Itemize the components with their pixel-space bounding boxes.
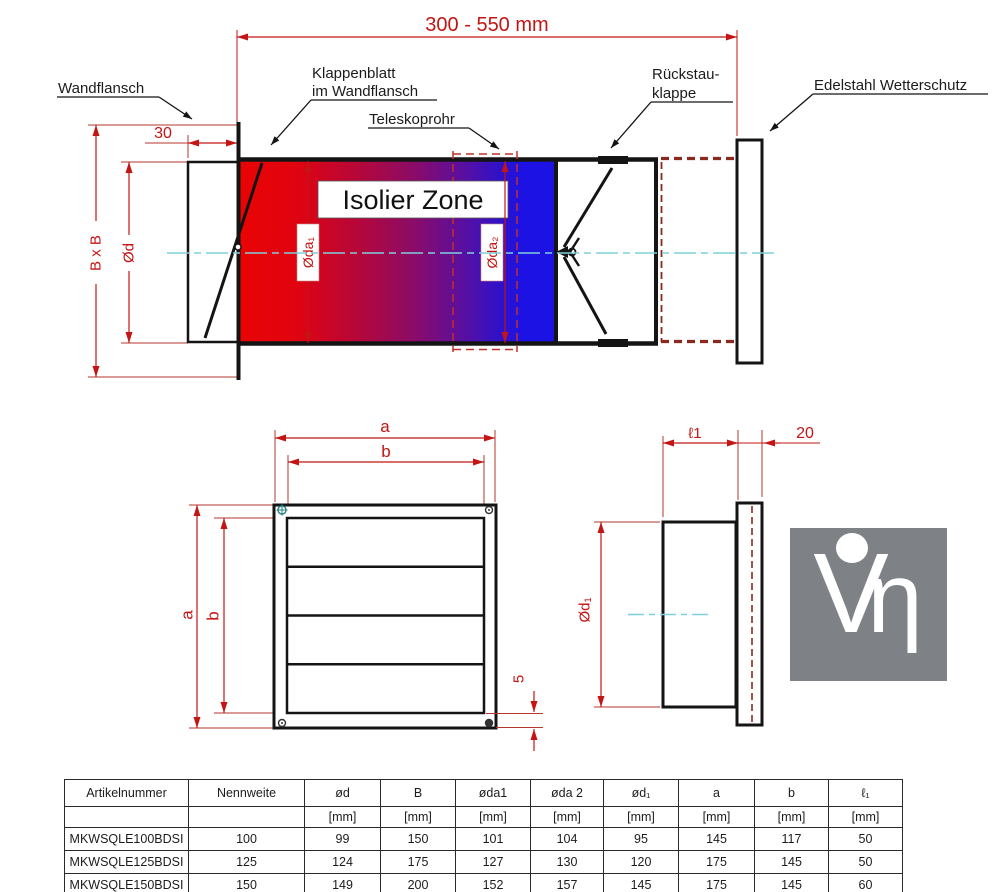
technical-drawing: 300 - 550 mm 30 B x B Ød [0, 0, 1000, 775]
table-header-cell: øda 2 [531, 780, 604, 807]
table-data-cell: 150 [189, 874, 305, 892]
table-data-cell: 149 [305, 874, 381, 892]
table-data-cell: 99 [305, 828, 381, 851]
spec-table: ArtikelnummerNennweiteødBøda1øda 2ød₁abℓ… [64, 779, 903, 892]
dim-label-5: 5 [511, 675, 528, 683]
dim-label-20: 20 [796, 425, 814, 442]
table-units-cell: [mm] [755, 807, 829, 828]
table-units-cell: [mm] [531, 807, 604, 828]
table-data-cell: 101 [456, 828, 531, 851]
table-data-cell: 120 [604, 851, 679, 874]
table-data-cell: 145 [679, 828, 755, 851]
table-units-cell: [mm] [456, 807, 531, 828]
table-data-cell: MKWSQLE125BDSI [65, 851, 189, 874]
table-data-cell: 127 [456, 851, 531, 874]
table-data-cell: 50 [829, 828, 903, 851]
dim-label-bxb: B x B [88, 235, 105, 271]
table-header-cell: a [679, 780, 755, 807]
dim-label-30: 30 [154, 125, 172, 142]
dim-label-l1: ℓ1 [688, 425, 701, 442]
duct-plate [737, 503, 762, 725]
isolier-zone-label: Isolier Zone [342, 185, 483, 215]
label-wandflansch: Wandflansch [58, 80, 144, 97]
table-header-cell: øda1 [456, 780, 531, 807]
dim-label-overall: 300 - 550 mm [425, 14, 548, 36]
table-data-cell: 175 [679, 851, 755, 874]
weather-plate [737, 140, 762, 363]
table-units-cell: [mm] [381, 807, 456, 828]
housing-tab-bottom [598, 339, 628, 347]
table-data-cell: 145 [604, 874, 679, 892]
table-data-cell: 95 [604, 828, 679, 851]
grille-front-view: a b a b [178, 417, 544, 751]
label-klappenblatt-2: im Wandflansch [312, 83, 418, 100]
table-units-cell [189, 807, 305, 828]
table-data-cell: 150 [381, 828, 456, 851]
table-header-cell: Nennweite [189, 780, 305, 807]
dim-flansch-depth: 30 [145, 125, 237, 158]
table-header-cell: B [381, 780, 456, 807]
dim-label-b-left: b [204, 611, 223, 620]
duct-side-view: ℓ1 20 Ød₁ [577, 425, 821, 725]
table-header-cell: Artikelnummer [65, 780, 189, 807]
flap-pivot [235, 244, 241, 250]
table-units-row: [mm][mm][mm][mm][mm][mm][mm][mm] [65, 807, 903, 828]
table-units-cell: [mm] [829, 807, 903, 828]
table-data-cell: 200 [381, 874, 456, 892]
logo-letter-eta: η [867, 542, 923, 654]
table-header-cell: b [755, 780, 829, 807]
table-data-cell: 104 [531, 828, 604, 851]
table-header-cell: ød₁ [604, 780, 679, 807]
label-klappenblatt-1: Klappenblatt [312, 65, 396, 82]
section-view: 300 - 550 mm 30 B x B Ød [57, 14, 988, 380]
table-data-row: MKWSQLE150BDSI15014920015215714517514560 [65, 874, 903, 892]
table-data-cell: 157 [531, 874, 604, 892]
table-data-cell: 60 [829, 874, 903, 892]
label-rueckstau-1: Rückstau- [652, 66, 720, 83]
dim-label-a-top: a [380, 417, 390, 436]
table-data-cell: 50 [829, 851, 903, 874]
table-units-cell [65, 807, 189, 828]
page: 300 - 550 mm 30 B x B Ød [0, 0, 1000, 892]
label-rueckstau-2: klappe [652, 85, 696, 102]
dim-label-od: Ød [121, 243, 138, 263]
table-data-row: MKWSQLE100BDSI100991501011049514511750 [65, 828, 903, 851]
table-data-cell: 152 [456, 874, 531, 892]
table-data-cell: 100 [189, 828, 305, 851]
dim-label-a-left: a [178, 610, 197, 620]
table-data-cell: 175 [381, 851, 456, 874]
table-data-cell: 130 [531, 851, 604, 874]
table-data-cell: 145 [755, 874, 829, 892]
dim-label-od1: Ød₁ [577, 597, 594, 622]
table-data-cell: MKWSQLE150BDSI [65, 874, 189, 892]
table-data-cell: 125 [189, 851, 305, 874]
label-teleskoprohr: Teleskoprohr [369, 111, 455, 128]
label-wetterschutz: Edelstahl Wetterschutz [814, 77, 967, 94]
table-data-cell: 124 [305, 851, 381, 874]
table-data-cell: 175 [679, 874, 755, 892]
table-header-cell: ℓ₁ [829, 780, 903, 807]
table-units-cell: [mm] [604, 807, 679, 828]
housing-tab-top [598, 156, 628, 164]
table-data-cell: MKWSQLE100BDSI [65, 828, 189, 851]
table-units-cell: [mm] [305, 807, 381, 828]
table-header-cell: ød [305, 780, 381, 807]
table-data-cell: 145 [755, 851, 829, 874]
table-units-cell: [mm] [679, 807, 755, 828]
table-header-row: ArtikelnummerNennweiteødBøda1øda 2ød₁abℓ… [65, 780, 903, 807]
dim-label-b-top: b [381, 442, 390, 461]
callouts: Wandflansch Klappenblatt im Wandflansch … [57, 65, 988, 149]
brand-logo: V η [790, 528, 947, 681]
table-data-cell: 117 [755, 828, 829, 851]
table-data-row: MKWSQLE125BDSI12512417512713012017514550 [65, 851, 903, 874]
